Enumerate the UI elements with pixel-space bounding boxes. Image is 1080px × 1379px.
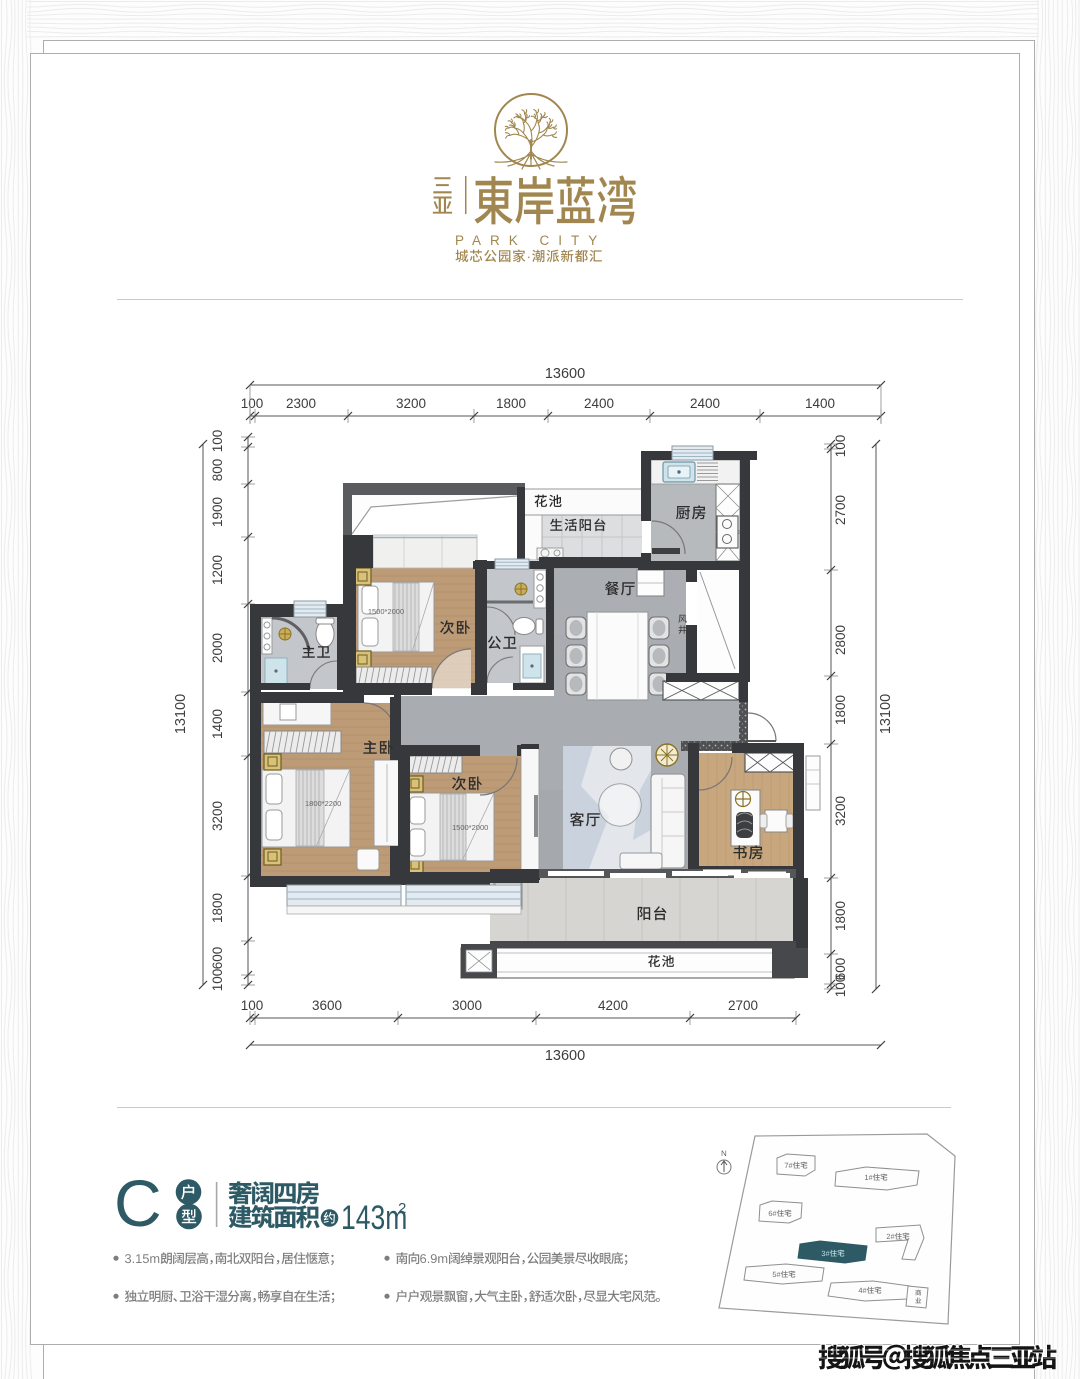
svg-text:13100: 13100 bbox=[878, 694, 894, 734]
svg-text:1400: 1400 bbox=[210, 709, 225, 739]
svg-text:1400: 1400 bbox=[805, 396, 835, 411]
svg-text:PARK CITY: PARK CITY bbox=[455, 233, 606, 248]
svg-text:2000: 2000 bbox=[210, 633, 225, 663]
svg-text:100: 100 bbox=[210, 969, 225, 992]
svg-text:3200: 3200 bbox=[833, 796, 848, 826]
svg-text:1500*2000: 1500*2000 bbox=[452, 823, 488, 832]
svg-text:3600: 3600 bbox=[312, 998, 342, 1013]
svg-text:13100: 13100 bbox=[173, 694, 189, 734]
svg-text:1800: 1800 bbox=[833, 901, 848, 931]
svg-text:13600: 13600 bbox=[545, 1048, 585, 1064]
svg-text:2: 2 bbox=[398, 1200, 406, 1217]
svg-text:4200: 4200 bbox=[598, 998, 628, 1013]
svg-text:2400: 2400 bbox=[690, 396, 720, 411]
svg-text:3200: 3200 bbox=[210, 801, 225, 831]
svg-text:1800: 1800 bbox=[833, 695, 848, 725]
svg-text:1800: 1800 bbox=[496, 396, 526, 411]
svg-text:100: 100 bbox=[241, 998, 264, 1013]
svg-text:100: 100 bbox=[833, 435, 848, 458]
svg-text:2400: 2400 bbox=[584, 396, 614, 411]
svg-text:3200: 3200 bbox=[396, 396, 426, 411]
svg-text:1800: 1800 bbox=[210, 893, 225, 923]
svg-text:2700: 2700 bbox=[833, 495, 848, 525]
svg-text:1500*2000: 1500*2000 bbox=[368, 607, 404, 616]
svg-text:13600: 13600 bbox=[545, 366, 585, 382]
svg-text:2300: 2300 bbox=[286, 396, 316, 411]
svg-text:100: 100 bbox=[833, 975, 848, 998]
svg-text:2700: 2700 bbox=[728, 998, 758, 1013]
svg-text:3000: 3000 bbox=[452, 998, 482, 1013]
svg-text:600: 600 bbox=[210, 947, 225, 970]
svg-text:1800*2200: 1800*2200 bbox=[305, 799, 341, 808]
svg-text:2800: 2800 bbox=[833, 625, 848, 655]
svg-text:1200: 1200 bbox=[210, 555, 225, 585]
svg-text:100: 100 bbox=[241, 396, 264, 411]
svg-text:1900: 1900 bbox=[210, 497, 225, 527]
svg-text:800: 800 bbox=[210, 459, 225, 482]
svg-text:C: C bbox=[114, 1166, 162, 1240]
svg-text:100: 100 bbox=[210, 430, 225, 453]
